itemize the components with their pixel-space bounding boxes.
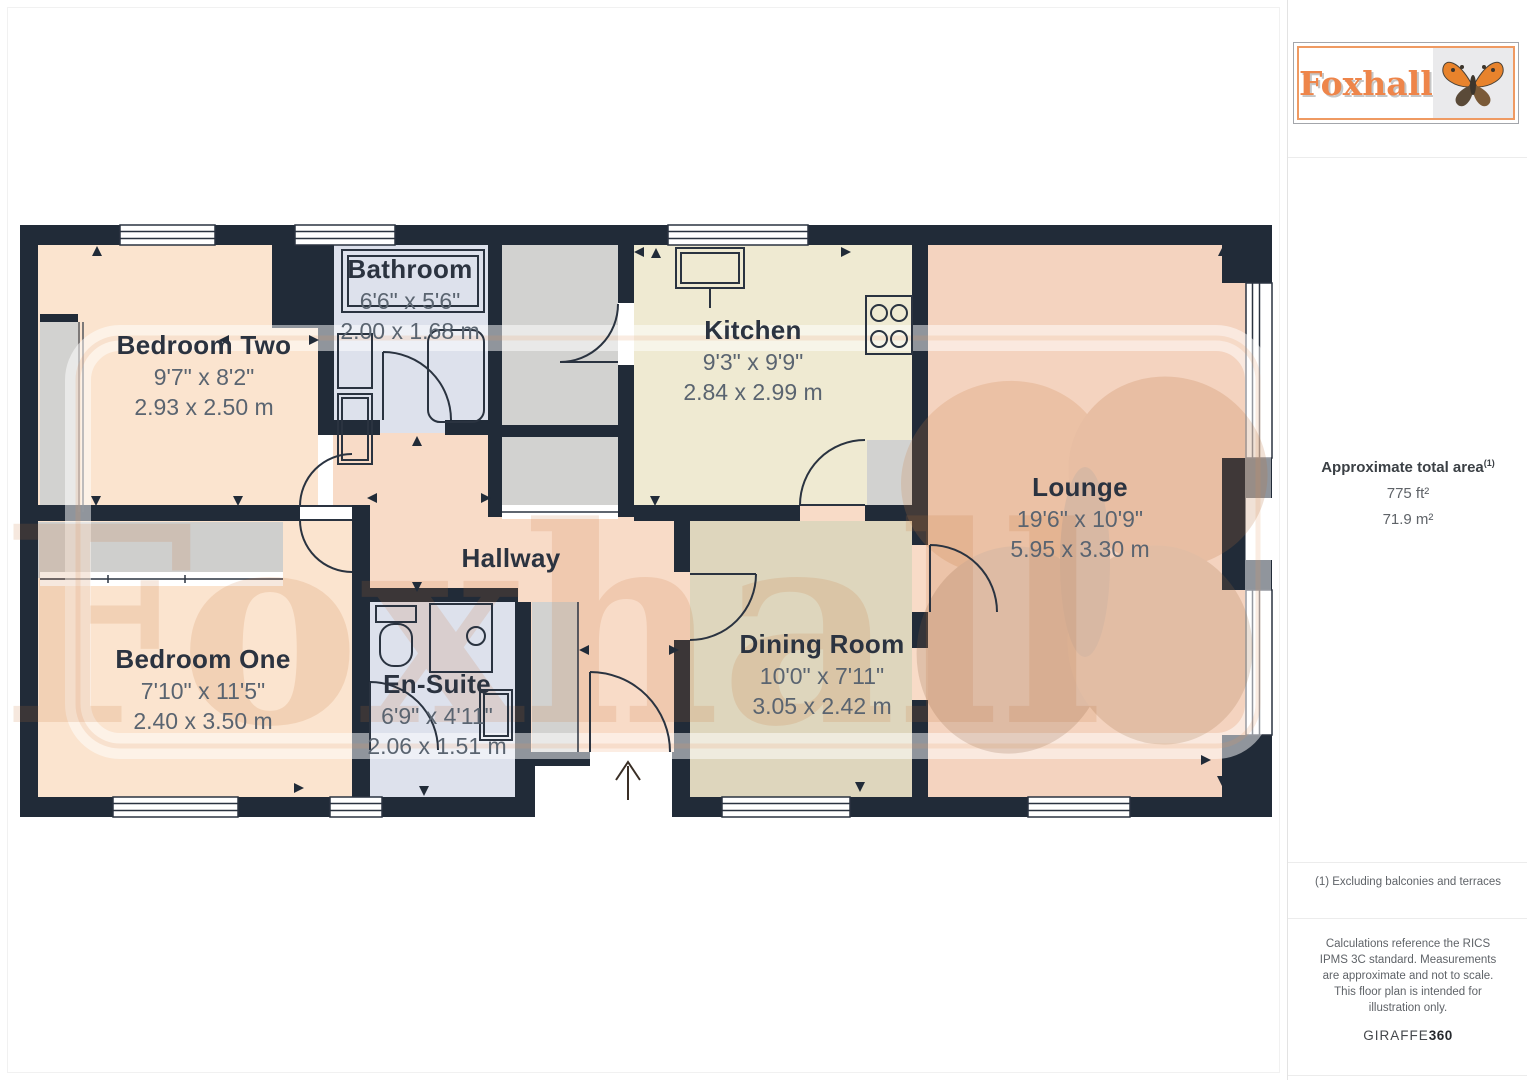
room-dim-metric: 3.05 x 2.42 m: [739, 693, 904, 720]
info-sidebar: Foxhall: [1287, 0, 1527, 1080]
room-dim-metric: 5.95 x 3.30 m: [1010, 536, 1149, 563]
total-area-metric: 71.9 m²: [1288, 511, 1527, 528]
sidebar-divider: [1288, 1075, 1527, 1076]
sidebar-divider: [1288, 918, 1527, 919]
room-dim-metric: 2.06 x 1.51 m: [367, 733, 506, 760]
room-dim-imperial: 7'10" x 11'5": [115, 678, 290, 705]
room-label-bedroom-two: Bedroom Two 9'7" x 8'2" 2.93 x 2.50 m: [117, 330, 292, 421]
room-label-kitchen: Kitchen 9'3" x 9'9" 2.84 x 2.99 m: [683, 315, 822, 406]
floor-plan: Foxhall: [0, 0, 1286, 1080]
room-dim-imperial: 9'7" x 8'2": [117, 364, 292, 391]
agency-logo-text: Foxhall: [1299, 64, 1433, 103]
room-name: Bedroom Two: [117, 330, 292, 361]
room-name: Lounge: [1010, 472, 1149, 503]
provider-suffix: 360: [1429, 1028, 1453, 1043]
room-name: Dining Room: [739, 629, 904, 660]
total-area-imperial: 775 ft²: [1288, 485, 1527, 502]
room-dim-metric: 2.00 x 1.68 m: [340, 318, 479, 345]
agency-logo: Foxhall: [1293, 42, 1519, 124]
room-dim-imperial: 9'3" x 9'9": [683, 349, 822, 376]
room-dim-imperial: 19'6" x 10'9": [1010, 506, 1149, 533]
room-dim-imperial: 6'9" x 4'11": [367, 703, 506, 730]
total-area-title: Approximate total area(1): [1288, 458, 1527, 476]
room-name: Hallway: [462, 543, 561, 574]
room-label-lounge: Lounge 19'6" x 10'9" 5.95 x 3.30 m: [1010, 472, 1149, 563]
total-area-superscript: (1): [1484, 458, 1495, 468]
room-label-bedroom-one: Bedroom One 7'10" x 11'5" 2.40 x 3.50 m: [115, 644, 290, 735]
area-footnote: (1) Excluding balconies and terraces: [1298, 876, 1518, 888]
room-dim-metric: 2.93 x 2.50 m: [117, 394, 292, 421]
room-name: Kitchen: [683, 315, 822, 346]
floorplan-page: Foxhall: [0, 0, 1527, 1080]
room-dim-imperial: 10'0" x 7'11": [739, 663, 904, 690]
room-label-bathroom: Bathroom 6'6" x 5'6" 2.00 x 1.68 m: [340, 254, 479, 345]
provider-badge: GIRAFFE360: [1288, 1028, 1527, 1043]
room-name: Bedroom One: [115, 644, 290, 675]
total-area-title-text: Approximate total area: [1321, 459, 1484, 476]
sidebar-divider: [1288, 862, 1527, 863]
butterfly-icon: [1433, 48, 1513, 118]
room-label-en-suite: En-Suite 6'9" x 4'11" 2.06 x 1.51 m: [367, 669, 506, 760]
room-name: Bathroom: [340, 254, 479, 285]
room-name: En-Suite: [367, 669, 506, 700]
room-label-dining-room: Dining Room 10'0" x 7'11" 3.05 x 2.42 m: [739, 629, 904, 720]
disclaimer-text: Calculations reference the RICS IPMS 3C …: [1314, 936, 1502, 1016]
room-dim-imperial: 6'6" x 5'6": [340, 288, 479, 315]
room-dim-metric: 2.84 x 2.99 m: [683, 379, 822, 406]
total-area-block: Approximate total area(1) 775 ft² 71.9 m…: [1288, 458, 1527, 528]
provider-name: GIRAFFE: [1363, 1028, 1429, 1043]
sidebar-divider: [1288, 157, 1527, 158]
room-dim-metric: 2.40 x 3.50 m: [115, 708, 290, 735]
room-label-hallway: Hallway: [462, 543, 561, 574]
